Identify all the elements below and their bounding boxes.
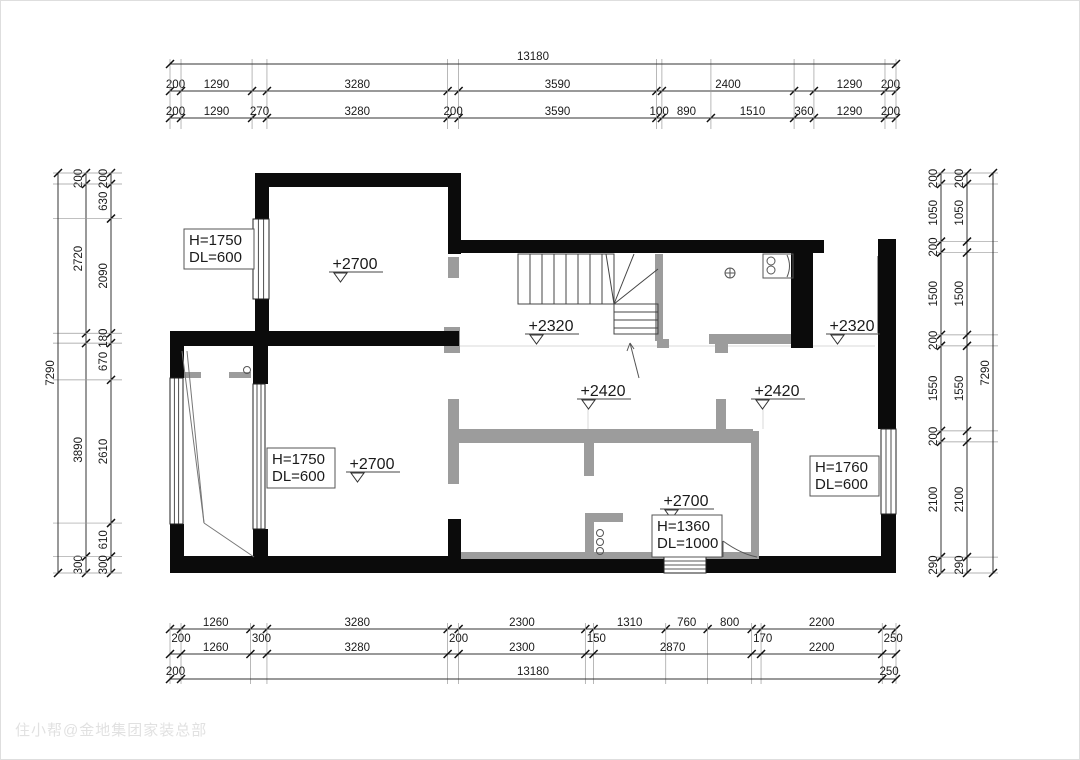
dimension-label: 250 xyxy=(884,633,903,645)
dimension-label: 3280 xyxy=(344,106,370,118)
elevation-triangle-icon xyxy=(756,400,769,409)
height-label-box: H=1360DL=1000 xyxy=(652,515,722,557)
dimension-label: 2100 xyxy=(954,487,966,513)
wall-segment xyxy=(255,173,461,187)
label-box-text: DL=600 xyxy=(815,476,868,493)
dimension-label: 200 xyxy=(881,79,900,91)
dimension-label: 630 xyxy=(98,192,110,211)
stair-lower-run xyxy=(614,304,658,334)
stair-arrow-head xyxy=(627,343,630,351)
wall-segment xyxy=(253,346,268,384)
gray-wall-segment xyxy=(584,431,594,476)
dimension-label: 200 xyxy=(881,106,900,118)
wall-segment xyxy=(170,524,184,561)
watermark: 住小帮@金地集团家装总部 xyxy=(15,719,207,740)
gray-wall-segment xyxy=(229,372,251,378)
window-frame xyxy=(253,219,269,299)
window-frame xyxy=(253,384,265,529)
elevation-marker: +2700 xyxy=(329,256,383,282)
wall-segment xyxy=(170,331,184,378)
gray-wall-segment xyxy=(585,513,623,522)
elevation-text: +2700 xyxy=(350,456,395,473)
dimension-label: 2300 xyxy=(509,642,535,654)
gray-wall-segment xyxy=(657,339,669,348)
dimension-label: 890 xyxy=(677,106,696,118)
dimension-label: 1290 xyxy=(837,106,863,118)
fixture-circle xyxy=(767,266,775,274)
fixture-circle xyxy=(767,257,775,265)
elevation-triangle-icon xyxy=(582,400,595,409)
height-label-box: H=1760DL=600 xyxy=(810,456,879,496)
gray-sill xyxy=(461,552,664,559)
dimension-label: 1050 xyxy=(954,200,966,226)
elevation-text: +2700 xyxy=(664,493,709,510)
dimension-label: 1500 xyxy=(954,281,966,307)
dimension-label: 300 xyxy=(73,555,85,574)
gray-wall-segment xyxy=(715,344,728,353)
label-box-text: DL=600 xyxy=(189,249,242,266)
door-leaf-line xyxy=(204,523,254,557)
dimension-label: 250 xyxy=(880,666,899,678)
dimension-label: 1550 xyxy=(928,376,940,402)
fixture-path xyxy=(787,255,790,277)
wall-segment xyxy=(881,514,896,561)
dimension-label: 290 xyxy=(928,555,940,574)
dimension-label: 200 xyxy=(928,331,940,350)
dimension-label: 200 xyxy=(928,237,940,256)
dimension-label: 200 xyxy=(73,169,85,188)
elevation-triangle-icon xyxy=(351,473,364,482)
wall-segment xyxy=(791,253,813,348)
drawing-page: +2700+2700+2320+2320+2420+2420+2700 H=17… xyxy=(0,0,1080,760)
window-frame xyxy=(881,429,896,514)
dimension-label: 200 xyxy=(166,79,185,91)
elevation-text: +2700 xyxy=(333,256,378,273)
elevation-triangle-icon xyxy=(831,335,844,344)
dimension-label: 200 xyxy=(166,106,185,118)
wall-segment xyxy=(878,239,896,429)
elevation-triangle-icon xyxy=(530,335,543,344)
dimension-label: 300 xyxy=(98,555,110,574)
dimension-label: 1290 xyxy=(204,106,230,118)
wall-segment xyxy=(255,173,269,219)
elevation-marker: +2320 xyxy=(525,318,579,344)
label-box-text: DL=600 xyxy=(272,468,325,485)
dimension-overall-label: 13180 xyxy=(517,666,549,678)
elevation-text: +2420 xyxy=(755,383,800,400)
gray-walls-layer xyxy=(182,254,880,558)
entrance-steps xyxy=(664,557,706,573)
dimension-label: 1050 xyxy=(928,200,940,226)
dimension-label: 1290 xyxy=(204,79,230,91)
dimension-label: 150 xyxy=(587,633,606,645)
dimension-overall-label: 7290 xyxy=(980,360,992,386)
dimension-label: 200 xyxy=(928,169,940,188)
dimension-label: 670 xyxy=(98,352,110,371)
elevation-marker: +2420 xyxy=(577,383,631,409)
dimension-label: 180 xyxy=(98,329,110,348)
dimension-label: 200 xyxy=(444,106,463,118)
dimension-overall-label: 7290 xyxy=(45,360,57,386)
dimension-label: 1290 xyxy=(837,79,863,91)
gray-wall-segment xyxy=(716,399,726,431)
dimension-label: 3590 xyxy=(545,79,571,91)
window xyxy=(170,378,183,524)
stair-direction-arrow xyxy=(630,343,639,378)
elevation-triangle-icon xyxy=(334,273,347,282)
dimension-label: 800 xyxy=(720,617,739,629)
dimension-label: 610 xyxy=(98,530,110,549)
dimension-label: 100 xyxy=(650,106,669,118)
gray-wall-segment xyxy=(709,334,794,344)
stairs xyxy=(518,254,658,378)
elevation-marker: +2320 xyxy=(826,318,880,344)
dimension-label: 1550 xyxy=(954,376,966,402)
dimension-label: 1510 xyxy=(740,106,766,118)
dimension-label: 290 xyxy=(954,555,966,574)
dimension-label: 200 xyxy=(166,666,185,678)
dimension-label: 2610 xyxy=(98,439,110,465)
height-label-box: H=1750DL=600 xyxy=(184,229,254,269)
dimension-label: 200 xyxy=(449,633,468,645)
dimensions-layer: 2001290328035902400129020020012902703280… xyxy=(45,51,998,684)
dimension-overall-label: 13180 xyxy=(517,51,549,63)
dimension-label: 1310 xyxy=(617,617,643,629)
gray-wall-segment xyxy=(448,257,459,278)
label-box-text: H=1750 xyxy=(189,232,242,249)
window xyxy=(881,429,896,514)
height-label-box: H=1750DL=600 xyxy=(267,448,335,488)
dimension-label: 3280 xyxy=(344,617,370,629)
wall-segment xyxy=(448,240,824,253)
gray-wall-segment xyxy=(448,399,459,484)
dimension-label: 2300 xyxy=(509,617,535,629)
wall-segment xyxy=(448,519,461,561)
gray-wall-segment xyxy=(459,429,753,443)
dimension-label: 760 xyxy=(677,617,696,629)
dimension-label: 200 xyxy=(954,169,966,188)
dimension-label: 3890 xyxy=(73,437,85,463)
elevation-text: +2320 xyxy=(529,318,574,335)
dimension-label: 2200 xyxy=(809,617,835,629)
dimension-label: 2870 xyxy=(660,642,686,654)
dimension-label: 2090 xyxy=(98,263,110,289)
floor-plan-canvas: +2700+2700+2320+2320+2420+2420+2700 H=17… xyxy=(1,1,1080,760)
label-box-text: DL=1000 xyxy=(657,535,718,552)
dimension-label: 170 xyxy=(753,633,772,645)
dimension-label: 200 xyxy=(171,633,190,645)
dimension-label: 2200 xyxy=(809,642,835,654)
dimension-label: 1500 xyxy=(928,281,940,307)
stair-winder-line xyxy=(606,254,614,304)
gray-wall-segment xyxy=(751,431,759,558)
dimension-label: 2720 xyxy=(73,246,85,272)
label-box-text: H=1750 xyxy=(272,451,325,468)
window-frame xyxy=(170,378,183,524)
elevation-text: +2320 xyxy=(830,318,875,335)
fixture-circle xyxy=(597,530,604,537)
dimension-label: 1260 xyxy=(203,642,229,654)
dimension-label: 1260 xyxy=(203,617,229,629)
wall-segment xyxy=(170,331,459,346)
wall-segment xyxy=(253,529,268,561)
dimension-label: 3590 xyxy=(545,106,571,118)
dimension-label: 270 xyxy=(250,106,269,118)
dimension-label: 200 xyxy=(98,169,110,188)
dimension-label: 2100 xyxy=(928,487,940,513)
dimension-label: 300 xyxy=(252,633,271,645)
fixture-circle xyxy=(597,539,604,546)
window xyxy=(253,384,265,529)
label-box-text: H=1360 xyxy=(657,518,710,535)
label-box-text: H=1760 xyxy=(815,459,868,476)
window xyxy=(253,219,269,299)
dimension-label: 3280 xyxy=(344,79,370,91)
dimension-label: 360 xyxy=(794,106,813,118)
dimension-label: 200 xyxy=(928,427,940,446)
elevation-text: +2420 xyxy=(581,383,626,400)
elevation-marker: +2420 xyxy=(751,383,805,409)
dimension-label: 2400 xyxy=(715,79,741,91)
dimension-label: 3280 xyxy=(344,642,370,654)
black-walls-layer xyxy=(170,173,896,573)
hairlines-layer xyxy=(459,346,875,429)
elevation-marker: +2700 xyxy=(346,456,400,482)
